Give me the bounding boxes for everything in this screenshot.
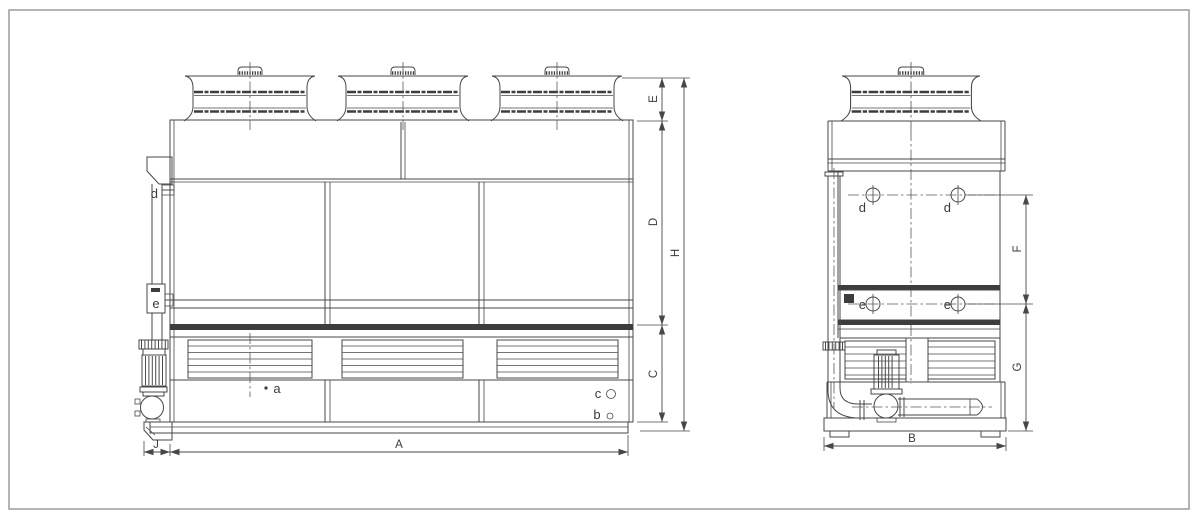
dim-label-J: J <box>153 439 159 451</box>
pump-volute <box>141 396 164 419</box>
connection-c-port <box>607 390 616 399</box>
dim-label-A: A <box>395 439 403 451</box>
label-connection-c: c <box>595 386 602 401</box>
dim-label-F: F <box>1012 245 1024 252</box>
control-box <box>844 294 854 303</box>
connection-d-flange <box>162 185 174 190</box>
border-frame <box>9 10 1189 509</box>
label-connection-d-left: d <box>859 200 866 215</box>
dim-label-C: C <box>648 370 660 378</box>
side-pump-volute <box>874 394 898 418</box>
dim-label-H: H <box>670 249 682 257</box>
side-foot-right <box>981 431 1000 437</box>
label-connection-a: a <box>273 381 281 396</box>
drain-point-marker <box>264 386 267 389</box>
label-connection-e: e <box>152 296 159 311</box>
front-pump <box>135 340 168 422</box>
dim-label-G: G <box>1012 362 1024 371</box>
louver-slats <box>188 346 618 372</box>
side-pump-motor <box>874 355 899 389</box>
label-connection-e-right: e <box>944 297 951 312</box>
dimension-JA: J A <box>144 435 628 456</box>
front-foot <box>144 422 172 440</box>
side-basin-base <box>824 382 1006 437</box>
side-body <box>828 121 1005 338</box>
dimension-B: B <box>824 433 1006 451</box>
label-connection-d-right: d <box>944 200 951 215</box>
side-connections-d: d d <box>848 185 995 215</box>
front-view: a c b d e <box>135 62 690 456</box>
cooling-tower-drawing: a c b d e <box>0 0 1200 520</box>
front-body <box>170 120 633 422</box>
side-fan-cowl <box>841 62 981 130</box>
side-foot-left <box>830 431 849 437</box>
inlet-bracket <box>147 157 172 184</box>
dim-label-B: B <box>908 433 916 445</box>
drawing-canvas: a c b d e <box>0 0 1200 520</box>
label-connection-e-left: e <box>859 297 866 312</box>
label-connection-b: b <box>593 407 600 422</box>
dim-label-D: D <box>648 218 660 226</box>
front-basin: a c b <box>264 380 615 422</box>
front-base <box>144 422 628 440</box>
connection-b-port <box>607 413 613 419</box>
front-louver-band <box>170 333 633 397</box>
side-louver-band <box>840 338 1000 382</box>
side-view: d d e e <box>823 62 1033 451</box>
label-connection-d: d <box>151 186 158 201</box>
dim-label-E: E <box>648 95 660 103</box>
